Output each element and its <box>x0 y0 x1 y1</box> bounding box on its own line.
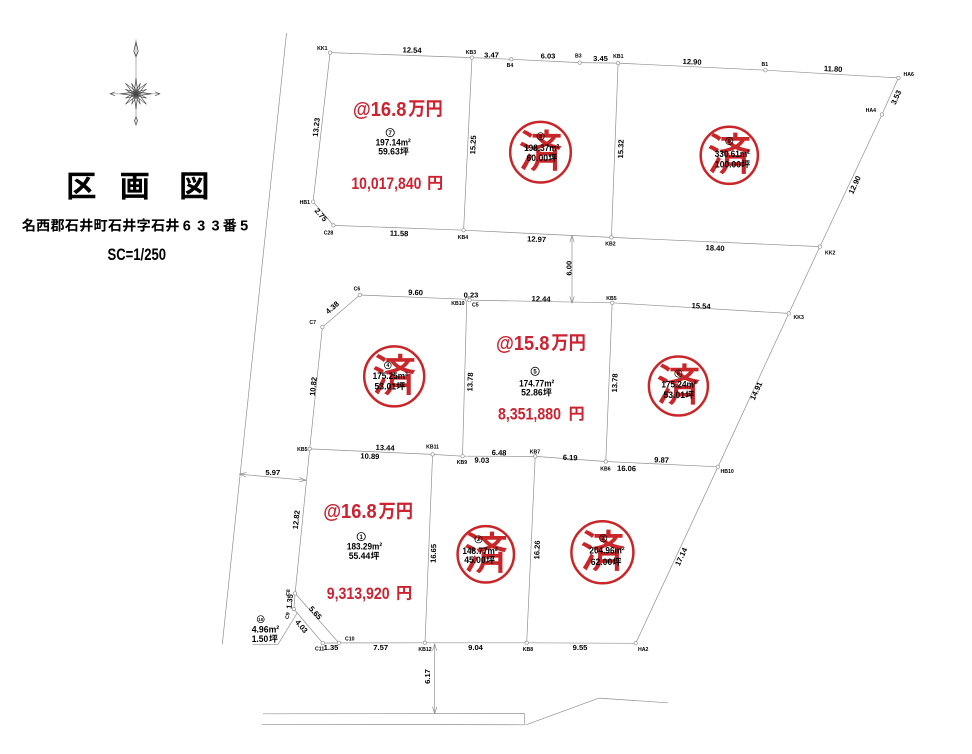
svg-text:3: 3 <box>197 218 205 234</box>
svg-text:55.44: 55.44 <box>349 551 371 561</box>
svg-text:10.89: 10.89 <box>360 451 379 461</box>
svg-text:HB10: HB10 <box>721 469 734 475</box>
svg-text:198.37m²: 198.37m² <box>524 143 559 153</box>
svg-text:12.97: 12.97 <box>527 234 546 244</box>
svg-text:0.23: 0.23 <box>464 291 479 300</box>
svg-text:KB5: KB5 <box>297 447 307 453</box>
svg-text:@15.8: @15.8 <box>496 333 550 355</box>
svg-text:6: 6 <box>677 372 680 378</box>
svg-text:59.63: 59.63 <box>378 147 400 157</box>
svg-text:C28: C28 <box>324 231 334 237</box>
svg-text:45.00: 45.00 <box>464 555 486 565</box>
svg-text:62.00: 62.00 <box>591 557 613 567</box>
svg-text:9,313,920: 9,313,920 <box>327 584 390 603</box>
svg-text:KB10: KB10 <box>451 301 464 307</box>
svg-text:204.96m²: 204.96m² <box>589 545 624 555</box>
svg-text:KB4: KB4 <box>458 235 468 241</box>
svg-text:KB3: KB3 <box>466 50 476 56</box>
svg-text:5: 5 <box>240 218 248 234</box>
svg-text:KB6: KB6 <box>600 466 610 472</box>
svg-text:3.47: 3.47 <box>484 50 499 59</box>
svg-text:183.29m²: 183.29m² <box>347 541 382 551</box>
svg-text:9.60: 9.60 <box>408 288 423 298</box>
svg-text:HB1: HB1 <box>300 200 310 206</box>
svg-text:1.50: 1.50 <box>252 634 269 644</box>
svg-text:7.57: 7.57 <box>373 643 388 652</box>
svg-text:53.01: 53.01 <box>375 381 397 391</box>
svg-text:15.25: 15.25 <box>468 134 478 154</box>
svg-text:13.78: 13.78 <box>465 372 475 391</box>
svg-text:6.00: 6.00 <box>564 261 573 276</box>
svg-text:9.87: 9.87 <box>654 455 669 465</box>
svg-text:@16.8: @16.8 <box>353 99 407 121</box>
svg-text:8: 8 <box>539 134 542 140</box>
svg-text:9.03: 9.03 <box>474 456 489 466</box>
svg-text:C7: C7 <box>309 320 316 326</box>
svg-text:KB2: KB2 <box>605 242 615 248</box>
svg-text:15.54: 15.54 <box>691 301 711 311</box>
svg-text:52.86: 52.86 <box>521 388 543 398</box>
svg-text:C5: C5 <box>472 303 479 309</box>
svg-text:5.97: 5.97 <box>265 468 280 477</box>
svg-text:330.61m²: 330.61m² <box>715 149 750 159</box>
svg-text:11.80: 11.80 <box>824 64 843 74</box>
svg-text:@16.8: @16.8 <box>323 501 377 523</box>
svg-text:12.54: 12.54 <box>402 45 422 55</box>
svg-text:1.35: 1.35 <box>324 643 340 652</box>
svg-text:9.04: 9.04 <box>468 643 484 652</box>
svg-text:HA4: HA4 <box>866 108 876 114</box>
svg-text:15.32: 15.32 <box>616 139 626 158</box>
svg-text:B4: B4 <box>507 63 514 69</box>
svg-text:12.90: 12.90 <box>682 57 701 67</box>
svg-text:12.44: 12.44 <box>531 294 551 304</box>
svg-text:C9: C9 <box>285 612 292 619</box>
svg-text:KB11: KB11 <box>426 445 439 451</box>
svg-text:10,017,840: 10,017,840 <box>351 174 421 193</box>
svg-text:C11: C11 <box>315 646 324 652</box>
svg-text:53.01: 53.01 <box>664 390 686 400</box>
svg-text:KB12: KB12 <box>418 647 431 653</box>
svg-text:16.65: 16.65 <box>429 543 439 563</box>
svg-text:KB5: KB5 <box>606 296 616 302</box>
svg-text:KB7: KB7 <box>530 449 540 455</box>
svg-text:KK2: KK2 <box>825 251 835 257</box>
svg-text:100.00: 100.00 <box>715 159 741 169</box>
svg-text:6.03: 6.03 <box>541 52 556 61</box>
svg-text:6.17: 6.17 <box>423 669 432 684</box>
svg-text:2: 2 <box>477 537 480 543</box>
svg-text:60.00: 60.00 <box>527 153 549 163</box>
svg-text:6: 6 <box>183 218 191 234</box>
svg-text:11.58: 11.58 <box>390 229 409 239</box>
svg-text:175.25m²: 175.25m² <box>373 371 408 381</box>
svg-text:18.40: 18.40 <box>705 243 724 253</box>
svg-text:KB1: KB1 <box>613 54 623 60</box>
svg-text:13.78: 13.78 <box>610 373 620 392</box>
svg-text:SC=1/250: SC=1/250 <box>108 246 167 264</box>
svg-text:3: 3 <box>602 536 605 542</box>
svg-text:6.48: 6.48 <box>492 448 507 458</box>
svg-text:B1: B1 <box>761 62 768 68</box>
svg-text:KK1: KK1 <box>317 46 327 52</box>
svg-text:6.19: 6.19 <box>563 453 578 463</box>
svg-text:175.24m²: 175.24m² <box>661 380 696 390</box>
svg-text:KB9: KB9 <box>457 460 467 466</box>
svg-text:HA6: HA6 <box>904 72 914 78</box>
svg-text:9: 9 <box>728 139 731 145</box>
svg-text:16.06: 16.06 <box>617 464 636 474</box>
svg-text:3: 3 <box>211 218 219 234</box>
svg-text:KK3: KK3 <box>794 315 804 321</box>
svg-text:HA2: HA2 <box>638 647 648 653</box>
svg-text:B3: B3 <box>575 54 582 60</box>
svg-text:3.45: 3.45 <box>593 54 609 63</box>
svg-text:4: 4 <box>386 363 389 369</box>
svg-text:10: 10 <box>258 617 263 622</box>
svg-text:KB8: KB8 <box>523 647 533 653</box>
svg-text:16.26: 16.26 <box>532 540 542 559</box>
svg-text:C8: C8 <box>285 589 292 596</box>
svg-text:8,351,880: 8,351,880 <box>498 405 561 424</box>
svg-text:C6: C6 <box>354 287 361 293</box>
svg-text:C10: C10 <box>345 637 355 643</box>
svg-text:9.55: 9.55 <box>573 643 589 652</box>
